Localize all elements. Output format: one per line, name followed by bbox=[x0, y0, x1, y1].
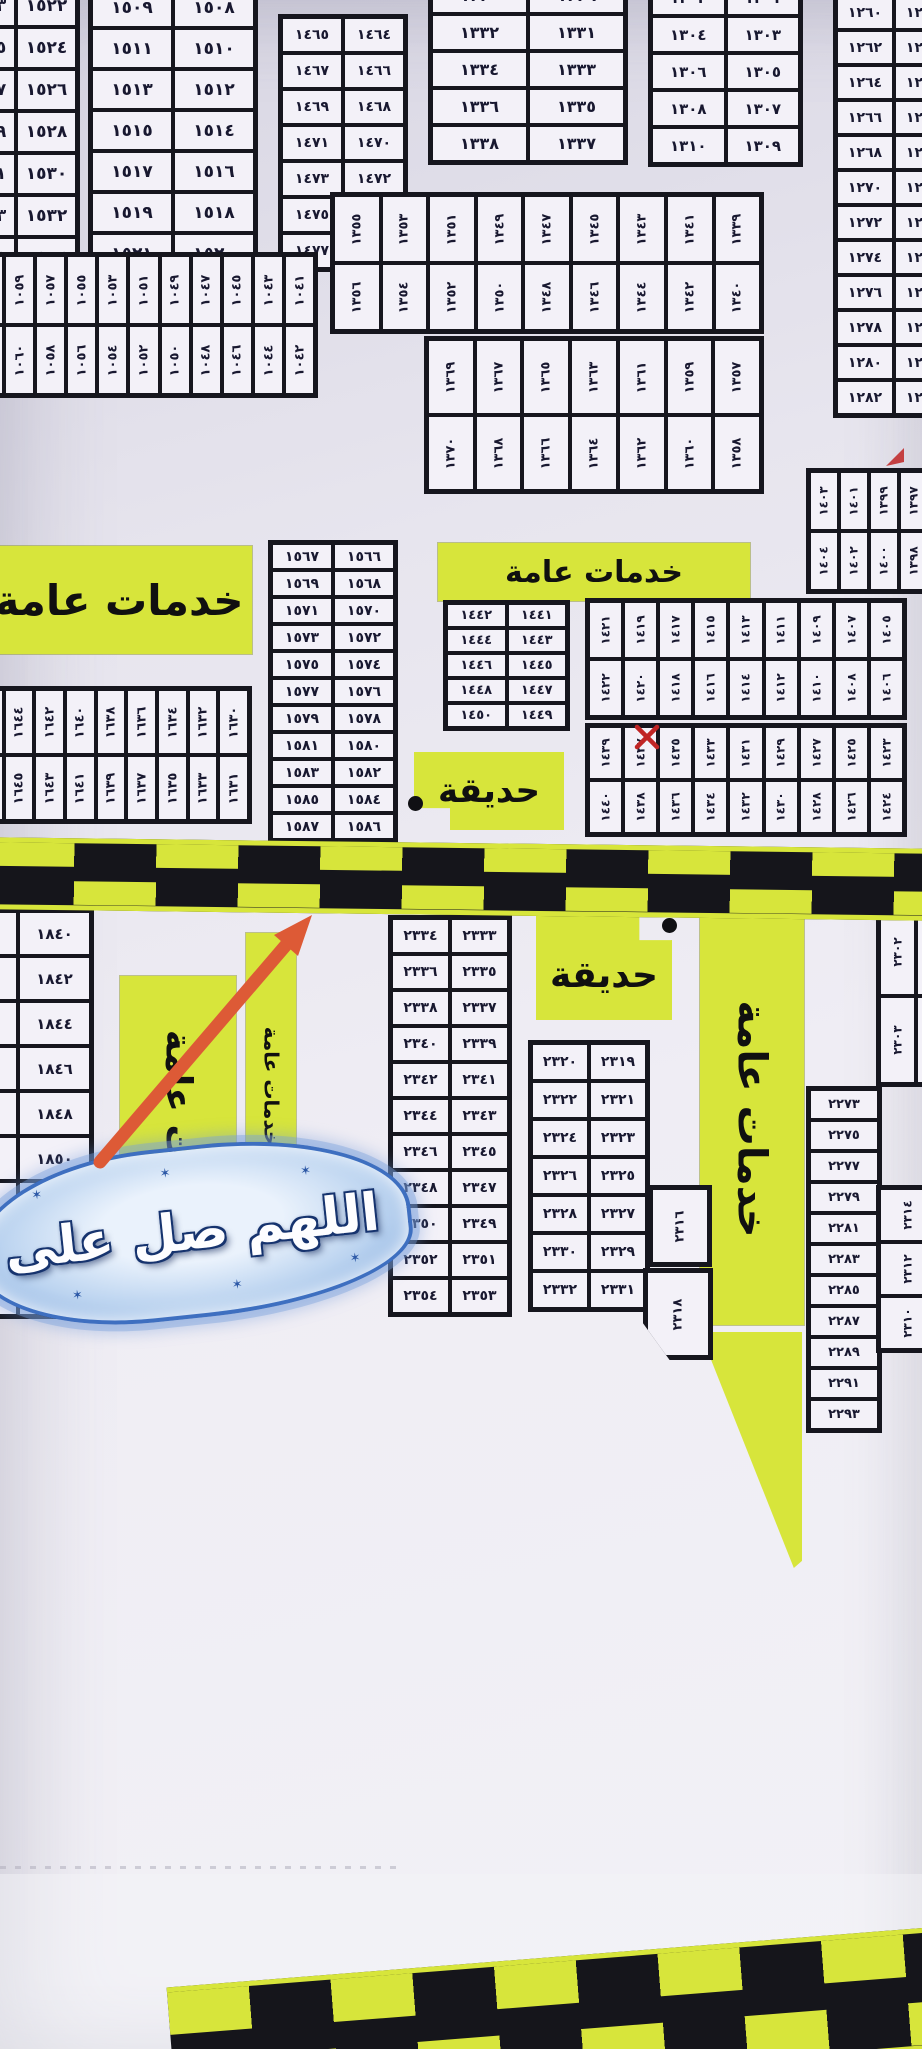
plot-row: ١٥١٧١٥١٦ bbox=[93, 153, 253, 190]
plot-cell: ١٢٧٠ bbox=[838, 172, 892, 203]
plat-map-photo: خدمات عامة خدمات عامة خدمات عامة خدمات ع… bbox=[0, 0, 922, 2049]
plot-cell: ٢٣٤٦ bbox=[393, 1136, 448, 1168]
plot-cell: ١٤٢٨ bbox=[801, 782, 832, 832]
plot-cell: ١٠٥٩ bbox=[6, 257, 33, 323]
plot-cell: ٢٣٣٨ bbox=[393, 992, 448, 1024]
plot-row: ١٢٦٠١٢٥٩ bbox=[838, 0, 922, 28]
plot-cell: ١٣٦١ bbox=[620, 341, 664, 413]
plot-cell: ١٢٧٤ bbox=[838, 242, 892, 273]
plot-row: ٢٢٩١ bbox=[811, 1370, 877, 1397]
plot-row: ١٤٦٥١٤٦٤ bbox=[283, 19, 403, 51]
plot-cell: ١٣٣٥ bbox=[530, 90, 623, 123]
plot-row: ٢٣٠٢٢٣٠٠ bbox=[881, 910, 922, 994]
plot-row: ١٥٢٩١٥٢٨ bbox=[0, 113, 75, 151]
plot-cell: ١٤٦٧ bbox=[283, 55, 341, 87]
plot-cell: ١٥١٩ bbox=[93, 194, 171, 231]
plot-cell: ١٤٤٩ bbox=[509, 705, 566, 726]
plot-row: ١٣٣٠١٣٢٩ bbox=[433, 0, 623, 12]
plot-cell: ١٣٠٧ bbox=[728, 92, 799, 125]
plot-cell: ١٦٣٠ bbox=[220, 691, 247, 753]
plot-cell: ١٣٥٩ bbox=[668, 341, 712, 413]
plot-cell: ١٤٠٧ bbox=[836, 603, 867, 657]
plot-row: ١٣٥٦١٣٥٤١٣٥٢١٣٥٠١٣٤٨١٣٤٦١٣٤٤١٣٤٢١٣٤٠ bbox=[335, 265, 759, 329]
plot-cell: ١٥١٣ bbox=[93, 71, 171, 108]
garden-label: حديقة bbox=[438, 771, 540, 811]
plot-cell: ١٤٢٥ bbox=[836, 728, 867, 778]
plot-cell: ١٠٥٤ bbox=[99, 327, 126, 393]
plot-row: ١٥٦٩١٥٦٨ bbox=[273, 572, 393, 595]
plot-row: ١٠٦٢١٠٦٠١٠٥٨١٠٥٦١٠٥٤١٠٥٢١٠٥٠١٠٤٨١٠٤٦١٠٤٤… bbox=[0, 327, 313, 393]
plot-cell: ١٦٤٥ bbox=[6, 757, 33, 819]
plot-cell: ١٣٣٢ bbox=[433, 16, 526, 49]
plot-row: ١٥٧٣١٥٧٢ bbox=[273, 626, 393, 649]
plot-cell: ١٥٨٧ bbox=[273, 815, 331, 838]
plot-cell: ١٥٨٣ bbox=[273, 761, 331, 784]
plot-cell: ١٢٦٧ bbox=[896, 137, 922, 168]
plot-cell: ١٤٠٢ bbox=[841, 533, 867, 589]
plot-cell: ١٥٧٥ bbox=[273, 653, 331, 676]
plot-cell: ١٤٧٠ bbox=[345, 127, 403, 159]
plot-cell: ١٥٢٥ bbox=[0, 29, 14, 67]
plot-row: ٢٢٧٩ bbox=[811, 1184, 877, 1211]
plot-cell: ١٣٤٩ bbox=[478, 197, 522, 261]
plot-cell: ١٥٢٦ bbox=[18, 71, 75, 109]
plot-row: ١٤٧١١٤٧٠ bbox=[283, 127, 403, 159]
plot-cell: ١٣٦٢ bbox=[620, 417, 664, 489]
plot-cell: ١٨٤١ bbox=[0, 913, 16, 954]
plot-row: ١٣٧٠١٣٦٨١٣٦٦١٣٦٤١٣٦٢١٣٦٠١٣٥٨ bbox=[429, 417, 759, 489]
plot-row: ١٢٧٠١٢٦٩ bbox=[838, 172, 922, 203]
plot-cell: ١٣٣٣ bbox=[530, 53, 623, 86]
location-dot bbox=[662, 918, 677, 933]
red-tick-mark bbox=[884, 446, 906, 468]
plot-cell: ٢٣٣٠ bbox=[533, 1235, 587, 1269]
plot-row: ٢٢٧٧ bbox=[811, 1153, 877, 1180]
plot-row: ١٢٨٠١٢٧٩ bbox=[838, 347, 922, 378]
plot-cell: ٢٣١٨ bbox=[648, 1273, 708, 1355]
plot-cell: ٢٣٣٢ bbox=[533, 1273, 587, 1307]
plot-cell: ١٣٠٤ bbox=[653, 18, 724, 51]
plot-block-b1397: ١٤٠٣١٤٠١١٣٩٩١٣٩٧١٤٠٤١٤٠٢١٤٠٠١٣٩٨ bbox=[806, 468, 922, 594]
plot-cell: ١٢٦٦ bbox=[838, 102, 892, 133]
plot-cell: ٢٣٢٤ bbox=[533, 1121, 587, 1155]
plot-cell: ١٦٤١ bbox=[67, 757, 94, 819]
plot-cell: ١٠٥٣ bbox=[99, 257, 126, 323]
plot-cell: ١٣٦٧ bbox=[477, 341, 521, 413]
plot-cell: ٢٣٤١ bbox=[452, 1064, 507, 1096]
plot-row: ١٢٨٢١٢٨١ bbox=[838, 382, 922, 413]
plot-cell: ٢٣٥١ bbox=[452, 1244, 507, 1276]
plot-cell: ١٥٠٩ bbox=[93, 0, 171, 26]
plot-cell: ١٤٣٨ bbox=[625, 782, 656, 832]
plot-cell: ١٤١٤ bbox=[730, 661, 761, 715]
plot-cell: ١٣٢٩ bbox=[530, 0, 623, 12]
plot-cell: ٢٣٤٣ bbox=[452, 1100, 507, 1132]
plot-cell: ١٣٥٧ bbox=[715, 341, 759, 413]
plot-cell: ١٥١٤ bbox=[175, 112, 253, 149]
plot-cell: ٢٣١٢ bbox=[881, 1244, 922, 1294]
plot-cell: ١٣٠١ bbox=[728, 0, 799, 14]
plot-row: ٢٣١٠ bbox=[881, 1298, 922, 1348]
plot-cell: ١٠٤٥ bbox=[224, 257, 251, 323]
plot-cell: ١٤٣٥ bbox=[660, 728, 691, 778]
plot-cell: ١٦٣٢ bbox=[190, 691, 217, 753]
plot-cell: ١٣٠٦ bbox=[653, 55, 724, 88]
plot-cell: ١٠٦٢ bbox=[0, 327, 2, 393]
plot-cell: ٢٣١٠ bbox=[881, 1298, 922, 1348]
plot-row: ١٤٧٣١٤٧٢ bbox=[283, 163, 403, 195]
plot-cell: ١٤٦٦ bbox=[345, 55, 403, 87]
plot-cell: ١٥١٨ bbox=[175, 194, 253, 231]
plot-cell: ١٥٦٨ bbox=[335, 572, 393, 595]
plot-row: ٢٣٢٦٢٣٢٥ bbox=[533, 1159, 645, 1193]
plot-cell: ١٣١٠ bbox=[653, 129, 724, 162]
plot-row: ٢٣٣٨٢٣٣٧ bbox=[393, 992, 507, 1024]
plot-cell: ١٥٨٥ bbox=[273, 788, 331, 811]
plot-row: ٢٢٨١ bbox=[811, 1215, 877, 1242]
plot-cell: ١٤٤٨ bbox=[448, 680, 505, 701]
plot-cell: ٢٣٤٩ bbox=[452, 1208, 507, 1240]
plot-cell: ١٤٧٣ bbox=[283, 163, 341, 195]
plot-cell: ١٣٦٥ bbox=[524, 341, 568, 413]
plot-cell: ١٤٠٤ bbox=[811, 533, 837, 589]
plot-block-b1301: ١٣٠٢١٣٠١١٣٠٤١٣٠٣١٣٠٦١٣٠٥١٣٠٨١٣٠٧١٣١٠١٣٠٩ bbox=[648, 0, 803, 167]
plot-cell: ١٨٤٩ bbox=[0, 1093, 16, 1134]
plot-cell: ١٥٧٢ bbox=[335, 626, 393, 649]
plot-cell: ١٠٤٨ bbox=[193, 327, 220, 393]
plot-cell: ١٠٤٣ bbox=[255, 257, 282, 323]
plot-cell: ١٣٥٥ bbox=[335, 197, 379, 261]
plot-cell: ١٥٨٢ bbox=[335, 761, 393, 784]
plot-row: ١٥٧١١٥٧٠ bbox=[273, 599, 393, 622]
plot-cell: ١٢٧٣ bbox=[896, 242, 922, 273]
calligraphy-text: اللهم صل على bbox=[2, 1183, 382, 1282]
plot-row: ٢٣٤٠٢٣٣٩ bbox=[393, 1028, 507, 1060]
plot-row: ١٥٨٥١٥٨٤ bbox=[273, 788, 393, 811]
plot-row: ١٤٢٢١٤٢٠١٤١٨١٤١٦١٤١٤١٤١٢١٤١٠١٤٠٨١٤٠٦ bbox=[590, 661, 902, 715]
plot-cell: ٢٢٨١ bbox=[811, 1215, 877, 1242]
plot-cell: ١٤٠٩ bbox=[801, 603, 832, 657]
plot-cell: ١٤١٢ bbox=[766, 661, 797, 715]
plot-row: ١٣٥٥١٣٥٣١٣٥١١٣٤٩١٣٤٧١٣٤٥١٣٤٣١٣٤١١٣٣٩ bbox=[335, 197, 759, 261]
plot-cell: ١٦٤٧ bbox=[0, 757, 2, 819]
plot-cell: ١٣٣٤ bbox=[433, 53, 526, 86]
plot-row: ١٥٣٣١٥٣٢ bbox=[0, 197, 75, 235]
plot-row: ١٥٧٧١٥٧٦ bbox=[273, 680, 393, 703]
plot-cell: ١٢٦٢ bbox=[838, 32, 892, 63]
plot-cell: ١٢٧١ bbox=[896, 207, 922, 238]
plot-cell: ٢٢٨٥ bbox=[811, 1277, 877, 1304]
plot-cell: ١٤٤٠ bbox=[590, 782, 621, 832]
plot-cell: ١٥٣٢ bbox=[18, 197, 75, 235]
public-services-area-middle: خدمات عامة bbox=[438, 543, 750, 601]
plot-cell: ١٠٥٦ bbox=[68, 327, 95, 393]
plot-row: ٢٣٣٦٢٣٣٥ bbox=[393, 956, 507, 988]
plot-cell: ١٤٤٥ bbox=[509, 655, 566, 676]
plot-cell: ٢٣١٤ bbox=[881, 1190, 922, 1240]
plot-row: ١٤٤٦١٤٤٥ bbox=[448, 655, 565, 676]
plot-cell: ١٢٦٥ bbox=[896, 102, 922, 133]
plot-cell: ١٣٥٤ bbox=[383, 265, 427, 329]
plot-cell: ١٣٣٦ bbox=[433, 90, 526, 123]
plot-cell: ٢٣٠١ bbox=[918, 998, 922, 1082]
plot-cell: ١٣٠٣ bbox=[728, 18, 799, 51]
public-services-wedge bbox=[700, 1332, 802, 1568]
plot-row: ١٢٦٤١٢٦٣ bbox=[838, 67, 922, 98]
plot-cell: ١٠٥٨ bbox=[37, 327, 64, 393]
plot-cell: ١٢٦١ bbox=[896, 32, 922, 63]
plot-row: ١٢٧٦١٢٧٥ bbox=[838, 277, 922, 308]
plot-cell: ٢٣٣٥ bbox=[452, 956, 507, 988]
plot-cell: ٢٢٧٧ bbox=[811, 1153, 877, 1180]
plot-cell: ١٥٢٨ bbox=[18, 113, 75, 151]
plot-cell: ١٥٨٦ bbox=[335, 815, 393, 838]
plot-cell: ١٦٤٠ bbox=[67, 691, 94, 753]
plot-cell: ١٦٣٨ bbox=[98, 691, 125, 753]
plot-cell: ١٨٥١ bbox=[0, 1138, 16, 1179]
plot-cell: ١٣٤٢ bbox=[668, 265, 712, 329]
plot-row: ١٥٢٥١٥٢٤ bbox=[0, 29, 75, 67]
plot-cell: ١٤٧١ bbox=[283, 127, 341, 159]
plot-cell: ٢٣٢٦ bbox=[533, 1159, 587, 1193]
plot-cell: ١٤٢١ bbox=[590, 603, 621, 657]
plot-cell: ١٣٠٥ bbox=[728, 55, 799, 88]
plot-row: ١٥٨٣١٥٨٢ bbox=[273, 761, 393, 784]
plot-cell: ٢٣٣١ bbox=[591, 1273, 645, 1307]
plot-cell: ١٤٧٢ bbox=[345, 163, 403, 195]
plot-cell: ٢٢٧٥ bbox=[811, 1122, 877, 1149]
plot-cell: ١٥٨٠ bbox=[335, 734, 393, 757]
plot-row: ٢٣١٦ bbox=[653, 1190, 707, 1262]
plot-cell: ١٣٣٨ bbox=[433, 127, 526, 160]
plot-cell: ٢٣٠٠ bbox=[918, 910, 922, 994]
plot-cell: ١٦٣٥ bbox=[159, 757, 186, 819]
plot-row: ١٠٦١١٠٥٩١٠٥٧١٠٥٥١٠٥٣١٠٥١١٠٤٩١٠٤٧١٠٤٥١٠٤٣… bbox=[0, 257, 313, 323]
plot-cell: ١٥٠٨ bbox=[175, 0, 253, 26]
plot-row: ١٥٣١١٥٣٠ bbox=[0, 155, 75, 193]
plot-cell: ١٥٧٦ bbox=[335, 680, 393, 703]
plot-cell: ١٠٤٤ bbox=[255, 327, 282, 393]
plot-cell: ٢٣٢١ bbox=[591, 1083, 645, 1117]
plot-cell: ١٥٢٧ bbox=[0, 71, 14, 109]
plot-row: ١٣٣٨١٣٣٧ bbox=[433, 127, 623, 160]
plot-row: ١٥٧٩١٥٧٨ bbox=[273, 707, 393, 730]
plot-cell: ١٥٧٣ bbox=[273, 626, 331, 649]
plot-cell: ١٤٦٩ bbox=[283, 91, 341, 123]
plot-cell: ١٥٨٤ bbox=[335, 788, 393, 811]
plot-cell: ٢٣٤٢ bbox=[393, 1064, 448, 1096]
plot-cell: ١٤٤٦ bbox=[448, 655, 505, 676]
plot-row: ١٥١٥١٥١٤ bbox=[93, 112, 253, 149]
plot-cell: ١٤٦٤ bbox=[345, 19, 403, 51]
plot-cell: ١٣٥١ bbox=[430, 197, 474, 261]
plot-cell: ١٠٦٠ bbox=[6, 327, 33, 393]
plot-row: ١٥٨٧١٥٨٦ bbox=[273, 815, 393, 838]
plot-row: ١٤٠٣١٤٠١١٣٩٩١٣٩٧ bbox=[811, 473, 922, 529]
plot-cell: ١٥٧٧ bbox=[273, 680, 331, 703]
plot-cell: ٢٣٥٤ bbox=[393, 1280, 448, 1312]
plot-row: ٢٣٤٤٢٣٤٣ bbox=[393, 1100, 507, 1132]
plot-cell: ١٨٤٥ bbox=[0, 1003, 16, 1044]
plot-cell: ١٤١٧ bbox=[660, 603, 691, 657]
plot-cell: ١٢٦٤ bbox=[838, 67, 892, 98]
plot-row: ١٤٤٠١٤٣٨١٤٣٦١٤٣٤١٤٣٢١٤٣٠١٤٢٨١٤٢٦١٤٢٤ bbox=[590, 782, 902, 832]
plot-cell: ١٥٧٤ bbox=[335, 653, 393, 676]
plot-cell: ١٢٧٧ bbox=[896, 312, 922, 343]
plot-cell: ١٤٣٦ bbox=[660, 782, 691, 832]
plot-cell: ١٥٧١ bbox=[273, 599, 331, 622]
plot-block-b1259: ١٢٦٠١٢٥٩١٢٦٢١٢٦١١٢٦٤١٢٦٣١٢٦٦١٢٦٥١٢٦٨١٢٦٧… bbox=[833, 0, 922, 418]
plot-cell: ١٦٣٣ bbox=[190, 757, 217, 819]
plot-cell: ١٥٢٢ bbox=[18, 0, 75, 25]
plot-row: ٢٢٨٩ bbox=[811, 1339, 877, 1366]
plot-cell: ٢٣٣٣ bbox=[452, 920, 507, 952]
plot-cell: ١٨٤٧ bbox=[0, 1048, 16, 1089]
plot-row: ١٤٢١١٤١٩١٤١٧١٤١٥١٤١٣١٤١١١٤٠٩١٤٠٧١٤٠٥ bbox=[590, 603, 902, 657]
plot-block-s2300: ٢٣٠٢٢٣٠٠٢٣٠٣٢٣٠١ bbox=[876, 905, 922, 1087]
plot-row: ١٤٠٤١٤٠٢١٤٠٠١٣٩٨ bbox=[811, 533, 922, 589]
plot-row: ١٤٤٤١٤٤٣ bbox=[448, 630, 565, 651]
plot-cell: ١٤٠٠ bbox=[871, 533, 897, 589]
plot-cell: ١٢٦٣ bbox=[896, 67, 922, 98]
plot-cell: ١٤٢٣ bbox=[871, 728, 902, 778]
plot-cell: ١٣٦٨ bbox=[477, 417, 521, 489]
plot-cell: ١٤٢٠ bbox=[625, 661, 656, 715]
plot-cell: ٢٣٢٥ bbox=[591, 1159, 645, 1193]
plot-block-s1339: ١٣٥٥١٣٥٣١٣٥١١٣٤٩١٣٤٧١٣٤٥١٣٤٣١٣٤١١٣٣٩١٣٥٦… bbox=[330, 192, 764, 334]
plot-row: ١٤٥٠١٤٤٩ bbox=[448, 705, 565, 726]
plot-cell: ١٢٨٢ bbox=[838, 382, 892, 413]
plot-cell: ٢٣٥٣ bbox=[452, 1280, 507, 1312]
plot-row: ٢٣١٤ bbox=[881, 1190, 922, 1240]
plot-block-s1630: ١٦٤٦١٦٤٤١٦٤٢١٦٤٠١٦٣٨١٦٣٦١٦٣٤١٦٣٢١٦٣٠١٦٤٧… bbox=[0, 686, 252, 824]
plot-cell: ١٥٢٩ bbox=[0, 113, 14, 151]
plot-cell: ١٨٤٣ bbox=[0, 958, 16, 999]
plot-cell: ٢٣٠٣ bbox=[881, 998, 914, 1082]
plot-cell: ١٣٥٦ bbox=[335, 265, 379, 329]
plot-cell: ١٣٩٨ bbox=[901, 533, 922, 589]
plot-cell: ١٦٣٧ bbox=[128, 757, 155, 819]
plot-cell: ١٣٤٥ bbox=[573, 197, 617, 261]
plot-cell: ١٥٧٠ bbox=[335, 599, 393, 622]
plot-cell: ٢٣٢٨ bbox=[533, 1197, 587, 1231]
plot-cell: ١٤١٠ bbox=[801, 661, 832, 715]
plot-row: ٢٢٨٣ bbox=[811, 1246, 877, 1273]
plot-row: ١٥١١١٥١٠ bbox=[93, 30, 253, 67]
plot-cell: ١٤٣٢ bbox=[730, 782, 761, 832]
plot-row: ١٤٦٧١٤٦٦ bbox=[283, 55, 403, 87]
plot-row: ١٢٧٤١٢٧٣ bbox=[838, 242, 922, 273]
plot-row: ٢٣٣٢٢٣٣١ bbox=[533, 1273, 645, 1307]
plot-cell: ١٠٥٢ bbox=[130, 327, 157, 393]
plot-cell: ١٥٣١ bbox=[0, 155, 14, 193]
plot-row: ١٣٠٦١٣٠٥ bbox=[653, 55, 798, 88]
plot-cell: ١٤٠٦ bbox=[871, 661, 902, 715]
plot-row: ١٥٢٣١٥٢٢ bbox=[0, 0, 75, 25]
star-icon: ✶ bbox=[231, 1277, 243, 1293]
plot-cell: ٢٣٠٢ bbox=[881, 910, 914, 994]
plot-cell: ١٤٢٦ bbox=[836, 782, 867, 832]
plot-cell: ٢٣٣٦ bbox=[393, 956, 448, 988]
plot-row: ١٥٦٧١٥٦٦ bbox=[273, 545, 393, 568]
plot-block-p2318: ٢٣١٨ bbox=[643, 1268, 713, 1360]
plot-cell: ١٤٤١ bbox=[509, 605, 566, 626]
plot-cell: ٢٣٢٣ bbox=[591, 1121, 645, 1155]
plot-cell: ١٤٢٧ bbox=[801, 728, 832, 778]
plot-row: ١٥٨١١٥٨٠ bbox=[273, 734, 393, 757]
plot-block-p2316: ٢٣١٦ bbox=[648, 1185, 712, 1267]
plot-cell: ١٣٣٩ bbox=[716, 197, 760, 261]
plot-cell: ١٣٥٣ bbox=[383, 197, 427, 261]
plot-cell: ٢٣٢٢ bbox=[533, 1083, 587, 1117]
plot-block-b1441: ١٤٤٢١٤٤١١٤٤٤١٤٤٣١٤٤٦١٤٤٥١٤٤٨١٤٤٧١٤٥٠١٤٤٩ bbox=[443, 600, 570, 731]
plot-cell: ١٣٣٠ bbox=[433, 0, 526, 12]
star-icon: ✶ bbox=[349, 1251, 361, 1267]
plot-cell: ١٦٣٤ bbox=[159, 691, 186, 753]
plot-cell: ١٣٩٧ bbox=[901, 473, 922, 529]
plot-cell: ١٢٨٠ bbox=[838, 347, 892, 378]
plot-cell: ١٥١٢ bbox=[175, 71, 253, 108]
plot-cell: ١٤٢٩ bbox=[766, 728, 797, 778]
plot-cell: ١٣٦٩ bbox=[429, 341, 473, 413]
plot-cell: ١٦٣١ bbox=[220, 757, 247, 819]
plot-cell: ١٣٤٤ bbox=[620, 265, 664, 329]
plot-cell: ١٣٧٠ bbox=[429, 417, 473, 489]
plot-cell: ١٢٦٩ bbox=[896, 172, 922, 203]
plot-row: ٢٢٧٥ bbox=[811, 1122, 877, 1149]
plot-row: ٢٣٢٠٢٣١٩ bbox=[533, 1045, 645, 1079]
location-dot bbox=[408, 796, 423, 811]
plot-cell: ١٦٣٦ bbox=[128, 691, 155, 753]
plot-cell: ١٣٦٦ bbox=[524, 417, 568, 489]
garden-label: حديقة bbox=[550, 937, 658, 996]
plot-block-c2273: ٢٢٧٣٢٢٧٥٢٢٧٧٢٢٧٩٢٢٨١٢٢٨٣٢٢٨٥٢٢٨٧٢٢٨٩٢٢٩١… bbox=[806, 1086, 882, 1433]
plot-cell: ١٤٣٠ bbox=[766, 782, 797, 832]
plot-cell: ١٣٤٣ bbox=[620, 197, 664, 261]
plot-row: ١٣٣٢١٣٣١ bbox=[433, 16, 623, 49]
plot-cell: ١٤٠١ bbox=[841, 473, 867, 529]
plot-block-s1405: ١٤٢١١٤١٩١٤١٧١٤١٥١٤١٣١٤١١١٤٠٩١٤٠٧١٤٠٥١٤٢٢… bbox=[585, 598, 907, 720]
plot-row: ٢٢٨٧ bbox=[811, 1308, 877, 1335]
plot-row: ١٣٠٨١٣٠٧ bbox=[653, 92, 798, 125]
plot-row: ١٣٦٩١٣٦٧١٣٦٥١٣٦٣١٣٦١١٣٥٩١٣٥٧ bbox=[429, 341, 759, 413]
plot-cell: ١٠٤٧ bbox=[193, 257, 220, 323]
public-services-label: خدمات عامة bbox=[0, 576, 244, 625]
plot-cell: ١٣٤٦ bbox=[573, 265, 617, 329]
plot-block-b2319: ٢٣٢٠٢٣١٩٢٣٢٢٢٣٢١٢٣٢٤٢٣٢٣٢٣٢٦٢٣٢٥٢٣٢٨٢٣٢٧… bbox=[528, 1040, 650, 1312]
plot-cell: ١٣٥٨ bbox=[715, 417, 759, 489]
plot-cell: ٢٣٤٧ bbox=[452, 1172, 507, 1204]
plot-cell: ١٤١٩ bbox=[625, 603, 656, 657]
star-icon: ✶ bbox=[71, 1288, 83, 1304]
plot-row: ١٢٦٨١٢٦٧ bbox=[838, 137, 922, 168]
plot-row: ٢٢٨٥ bbox=[811, 1277, 877, 1304]
plot-row: ٢٢٧٣ bbox=[811, 1091, 877, 1118]
plot-cell: ١٢٦٠ bbox=[838, 0, 892, 28]
plot-cell: ١٤٣٩ bbox=[590, 728, 621, 778]
plot-block-s2310: ٢٣١٤٢٣١٢٢٣١٠ bbox=[876, 1185, 922, 1353]
plot-cell: ٢٣٤٥ bbox=[452, 1136, 507, 1168]
plot-cell: ١٤١٥ bbox=[695, 603, 726, 657]
plot-cell: ١٥٣٣ bbox=[0, 197, 14, 235]
plot-cell: ١٣٦٠ bbox=[668, 417, 712, 489]
plot-cell: ١٥٢٤ bbox=[18, 29, 75, 67]
plot-cell: ٢٢٩٣ bbox=[811, 1401, 877, 1428]
plot-row: ١٥٢٧١٥٢٦ bbox=[0, 71, 75, 109]
public-services-area-tall-right: خدمات عامة bbox=[700, 913, 804, 1325]
plot-cell: ٢٣٣٧ bbox=[452, 992, 507, 1024]
plot-cell: ٢٣٣٩ bbox=[452, 1028, 507, 1060]
